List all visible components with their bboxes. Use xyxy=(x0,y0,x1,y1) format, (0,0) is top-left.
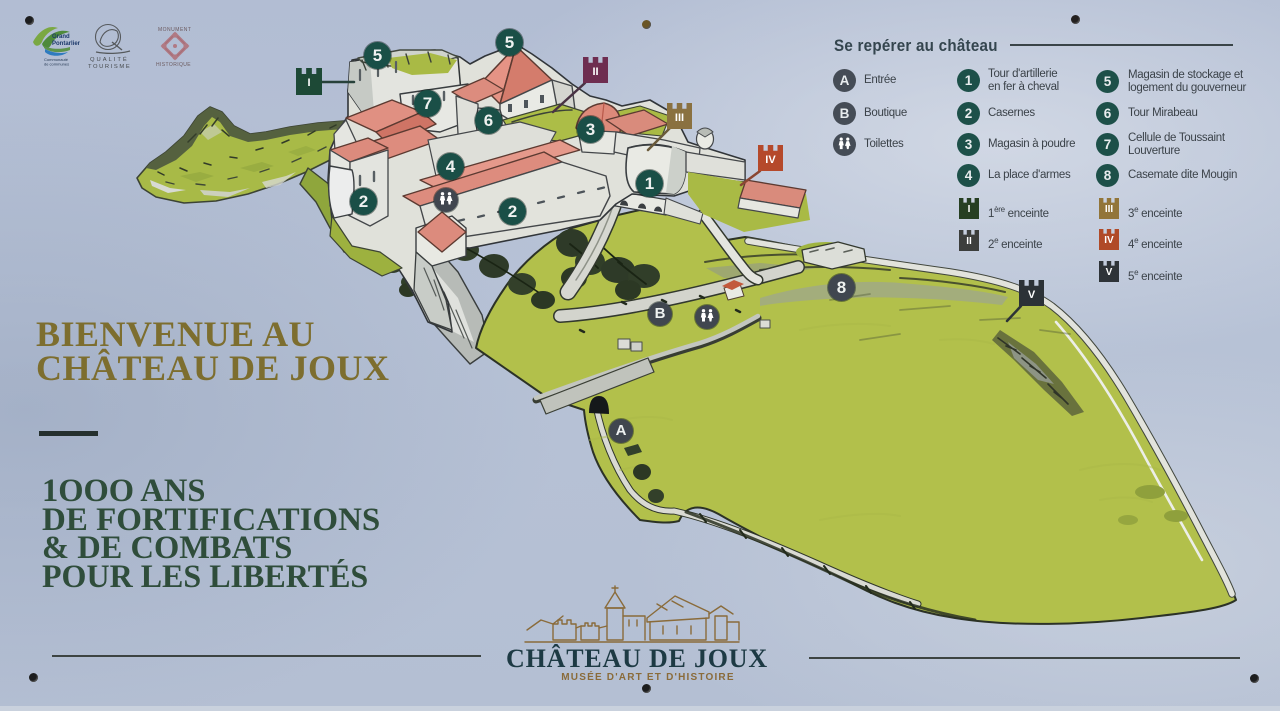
svg-text:TOURISME: TOURISME xyxy=(88,64,131,70)
svg-text:Grand: Grand xyxy=(52,34,70,40)
svg-text:QUALITÉ: QUALITÉ xyxy=(90,56,129,63)
svg-text:Pontarlier: Pontarlier xyxy=(52,41,81,47)
svg-text:de communes: de communes xyxy=(44,62,69,67)
svg-text:HISTORIQUE: HISTORIQUE xyxy=(156,62,191,68)
